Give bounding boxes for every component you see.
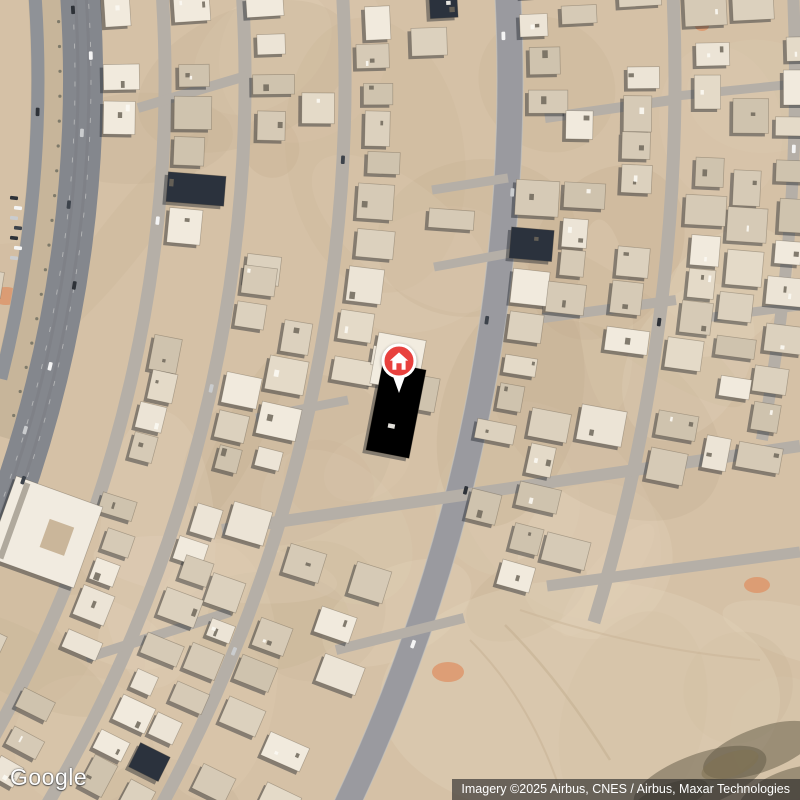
property-marker[interactable] [377, 342, 421, 396]
satellite-imagery-canvas[interactable] [0, 0, 800, 800]
imagery-attribution: Imagery ©2025 Airbus, CNES / Airbus, Max… [452, 779, 800, 800]
map-viewport[interactable]: Google Imagery ©2025 Airbus, CNES / Airb… [0, 0, 800, 800]
google-logo-watermark[interactable]: Google [10, 764, 87, 791]
